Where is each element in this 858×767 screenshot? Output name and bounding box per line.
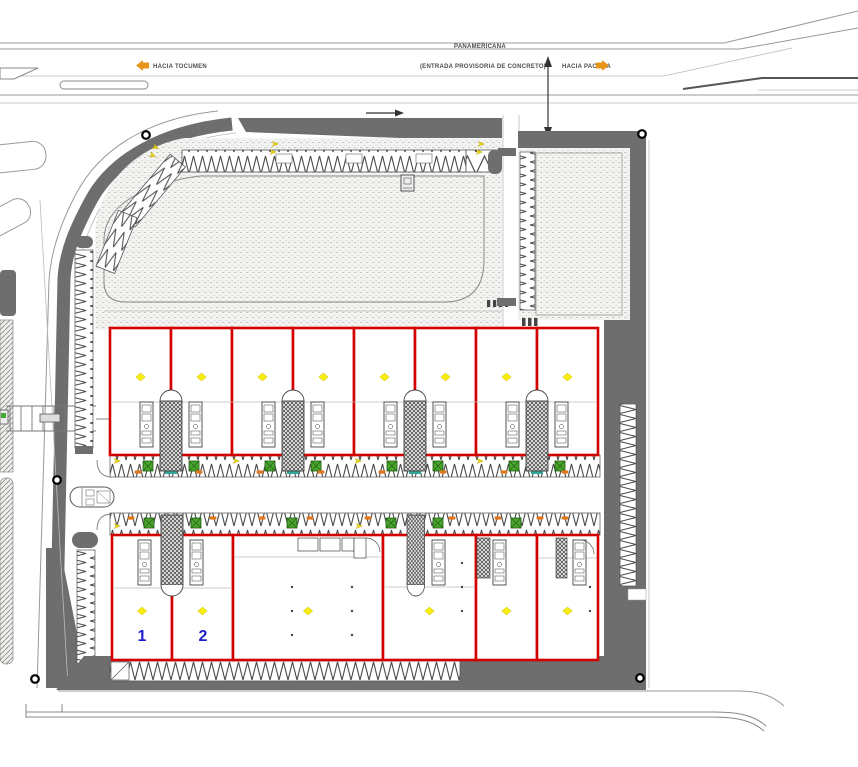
main-parking-lot xyxy=(95,115,519,330)
stair-core xyxy=(161,515,183,596)
restroom-core xyxy=(311,402,324,447)
stair-core xyxy=(556,538,567,578)
stair-core xyxy=(160,390,182,471)
stair-core xyxy=(477,538,490,578)
kiosk xyxy=(401,175,414,191)
restroom-core xyxy=(433,402,446,447)
restroom-core xyxy=(493,540,506,585)
warehouse-row-south: 1 2 xyxy=(112,515,598,660)
survey-marker-icon xyxy=(636,674,644,682)
warehouse-unit xyxy=(383,535,476,660)
highway-name-label: PANAMERICANA xyxy=(454,44,506,50)
restroom-core xyxy=(262,402,275,447)
survey-marker-icon xyxy=(31,675,39,683)
parking-strip-east xyxy=(620,404,636,586)
survey-marker-icon xyxy=(638,130,646,138)
restroom-core xyxy=(189,402,202,447)
survey-marker-icon xyxy=(53,476,61,484)
unit-1-label: 1 xyxy=(138,628,147,645)
restroom-core xyxy=(573,540,586,585)
median-island xyxy=(60,81,148,89)
restroom-core xyxy=(190,540,203,585)
hatched-median xyxy=(0,320,13,472)
unit-2-label: 2 xyxy=(199,628,208,645)
stair-core xyxy=(407,515,425,596)
warehouse-row-north xyxy=(110,328,598,474)
parking-strip-west xyxy=(75,250,93,448)
parking-row-south xyxy=(110,661,460,681)
restroom-core xyxy=(138,540,151,585)
stair-core xyxy=(404,390,426,471)
road-median xyxy=(0,270,16,316)
parking-row-east xyxy=(520,152,535,310)
site-plan-canvas: PANAMERICANA (ENTRADA PROVISORIA DE CONC… xyxy=(0,0,858,767)
stair-core xyxy=(526,390,548,471)
south-units-parking-strip xyxy=(110,513,600,535)
direction-west-label: HACIA TOCUMEN xyxy=(153,64,207,70)
restroom-core xyxy=(432,540,445,585)
restroom-core xyxy=(384,402,397,447)
dock-marks xyxy=(522,318,538,326)
guard-booth xyxy=(70,487,114,507)
hatched-median xyxy=(0,478,13,664)
stair-core xyxy=(282,390,304,471)
restroom-core xyxy=(140,402,153,447)
survey-marker-icon xyxy=(142,131,150,139)
restroom-core xyxy=(506,402,519,447)
site-plan-drawing: PANAMERICANA (ENTRADA PROVISORIA DE CONC… xyxy=(0,0,858,767)
restroom-core xyxy=(555,402,568,447)
highway-subtitle-label: (ENTRADA PROVISORIA DE CONCRETO) xyxy=(420,64,546,70)
warehouse-unit xyxy=(537,535,598,660)
